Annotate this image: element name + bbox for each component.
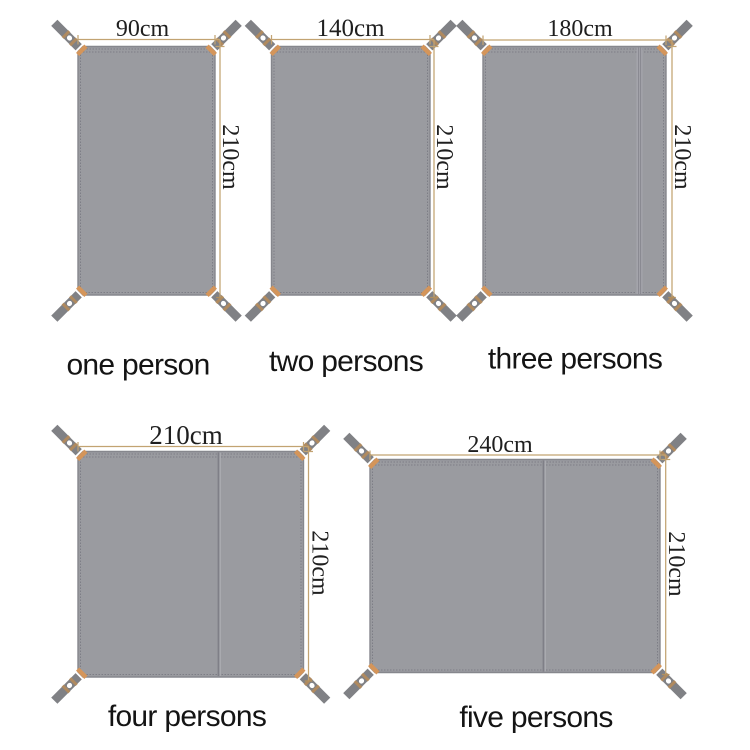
svg-text:210cm: 210cm [149, 420, 223, 450]
svg-text:240cm: 240cm [467, 432, 533, 458]
svg-text:90cm: 90cm [116, 16, 170, 42]
svg-text:210cm: 210cm [669, 124, 695, 190]
svg-text:210cm: 210cm [431, 124, 457, 190]
svg-text:two persons: two persons [269, 345, 423, 378]
svg-text:140cm: 140cm [316, 15, 385, 42]
svg-text:210cm: 210cm [663, 531, 689, 597]
svg-text:five persons: five persons [459, 701, 612, 734]
svg-text:180cm: 180cm [547, 16, 613, 42]
svg-text:210cm: 210cm [217, 124, 243, 190]
svg-text:one person: one person [66, 349, 209, 382]
svg-text:three persons: three persons [488, 343, 662, 376]
svg-text:four persons: four persons [108, 700, 266, 733]
svg-text:210cm: 210cm [306, 530, 332, 596]
